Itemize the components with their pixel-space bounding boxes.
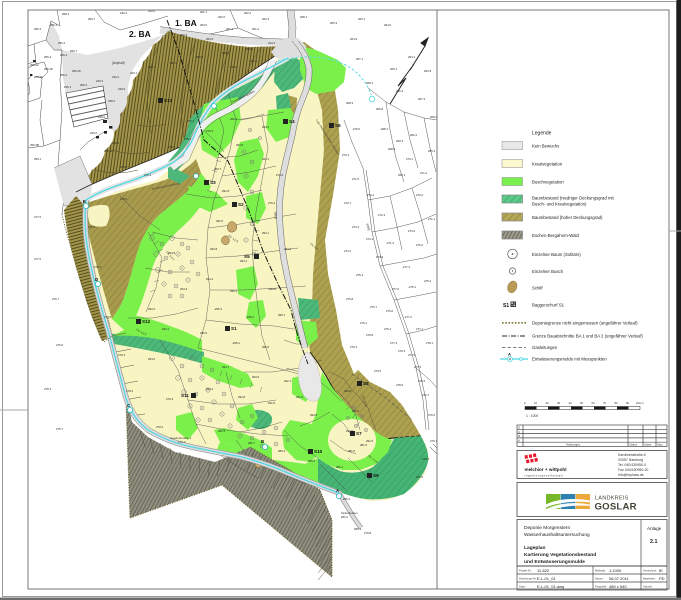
svg-text:267.1: 267.1 [356, 57, 363, 61]
svg-text:278.3: 278.3 [44, 387, 51, 391]
svg-text:Anlage: Anlage [647, 526, 662, 531]
svg-text:-276.1: -276.1 [408, 285, 416, 289]
svg-text:262.2: 262.2 [230, 117, 237, 121]
svg-text:Gepr.: Gepr. [657, 443, 664, 447]
svg-text:Bearbeitet:: Bearbeitet: [643, 577, 656, 581]
svg-text:264.0: 264.0 [384, 23, 391, 27]
svg-text:280.3: 280.3 [354, 527, 361, 531]
svg-text:240.0: 240.0 [90, 131, 97, 135]
svg-text:S3: S3 [210, 180, 216, 185]
svg-text:276.4: 276.4 [384, 327, 391, 331]
svg-text:1 : 1000: 1 : 1000 [526, 414, 538, 418]
svg-text:286.1: 286.1 [336, 465, 343, 469]
svg-text:273.2: 273.2 [408, 229, 415, 233]
svg-text:275.3: 275.3 [422, 457, 429, 461]
svg-text:260.3: 260.3 [112, 141, 119, 145]
svg-text:fK: fK [659, 568, 663, 573]
svg-text:270.4: 270.4 [342, 153, 349, 157]
svg-text:295.2: 295.2 [230, 289, 237, 293]
svg-text:240.3: 240.3 [96, 79, 103, 83]
svg-text:Tel. 040/430950-0: Tel. 040/430950-0 [618, 463, 646, 467]
svg-text:30: 30 [557, 401, 561, 405]
svg-text:20: 20 [546, 401, 550, 405]
svg-text:275.7: 275.7 [56, 427, 63, 431]
svg-text:06.07.2011: 06.07.2011 [609, 576, 629, 581]
svg-text:261.7: 261.7 [200, 10, 207, 14]
svg-text:276.3: 276.3 [398, 349, 405, 353]
svg-text:276.1: 276.1 [360, 321, 367, 325]
svg-text:280.4: 280.4 [278, 449, 285, 453]
svg-text:263.0: 263.0 [200, 23, 207, 27]
svg-text:240.2: 240.2 [120, 11, 127, 15]
svg-text:269.1: 269.1 [398, 173, 405, 177]
svg-text:A: A [508, 352, 511, 357]
svg-text:275.8: 275.8 [120, 165, 127, 169]
svg-text:2.1: 2.1 [650, 539, 658, 545]
svg-text:275.3: 275.3 [424, 279, 431, 283]
svg-text:256.29: 256.29 [72, 69, 81, 73]
svg-text:-268.1: -268.1 [380, 127, 388, 131]
svg-text:291.5: 291.5 [366, 439, 373, 443]
svg-text:265.3: 265.3 [330, 21, 337, 25]
svg-text:277.8: 277.8 [88, 225, 95, 229]
svg-text:268.1: 268.1 [300, 15, 307, 19]
svg-text:291.8: 291.8 [222, 189, 229, 193]
svg-text:256.4: 256.4 [58, 41, 65, 45]
svg-text:277.6: 277.6 [34, 215, 41, 219]
svg-text:291.6: 291.6 [352, 409, 359, 413]
svg-text:256.3: 256.3 [80, 83, 87, 87]
svg-text:259.7: 259.7 [88, 17, 95, 21]
svg-text:276.3: 276.3 [118, 353, 125, 357]
svg-text:278.4: 278.4 [418, 379, 425, 383]
svg-text:277.4: 277.4 [390, 341, 397, 345]
svg-text:240.1: 240.1 [250, 59, 257, 63]
svg-text:277.1: 277.1 [416, 327, 423, 331]
svg-text:90: 90 [626, 401, 630, 405]
svg-text:276.4: 276.4 [94, 265, 101, 269]
svg-text:S6: S6 [335, 123, 341, 128]
svg-text:259.24: 259.24 [34, 75, 43, 79]
svg-text:281.5: 281.5 [348, 449, 355, 453]
svg-text:11-622: 11-622 [537, 568, 550, 573]
svg-text:Baggerschurf S1: Baggerschurf S1 [532, 303, 565, 308]
svg-text:239.9: 239.9 [118, 87, 125, 91]
svg-text:Zeichnungs-Nr.:: Zeichnungs-Nr.: [519, 577, 538, 581]
svg-text:Kartierung Vegetationsbestand: Kartierung Vegetationsbestand [524, 552, 596, 558]
svg-text:S7: S7 [356, 431, 362, 436]
svg-text:262.2: 262.2 [244, 11, 251, 15]
svg-text:271.1: 271.1 [428, 217, 435, 221]
svg-text:Baumbestand (niedriger Deckung: Baumbestand (niedriger Deckungsgrad mit [532, 196, 614, 201]
svg-text:20357 Hamburg: 20357 Hamburg [618, 458, 643, 462]
svg-text:293.8: 293.8 [210, 247, 217, 251]
svg-text:S11: S11 [181, 393, 189, 398]
svg-text:256.4: 256.4 [50, 23, 57, 27]
svg-text:263.9: 263.9 [424, 69, 431, 73]
svg-text:480 x 540: 480 x 540 [609, 584, 627, 589]
svg-text:274.6: 274.6 [276, 173, 283, 177]
svg-text:279.5: 279.5 [374, 369, 381, 373]
svg-text:240.2: 240.2 [230, 65, 237, 69]
svg-text:Entwässerungsmulde mit Messpun: Entwässerungsmulde mit Messpunkten [532, 357, 607, 362]
svg-text:Projekt-Nr.:: Projekt-Nr.: [519, 569, 532, 573]
svg-text:Maßstab:: Maßstab: [595, 569, 606, 573]
svg-text:Geprüft:: Geprüft: [643, 585, 653, 589]
svg-text:264.9: 264.9 [350, 37, 357, 41]
svg-text:S4: S4 [289, 119, 295, 124]
svg-text:276.4: 276.4 [268, 201, 275, 205]
svg-text:-277.3: -277.3 [402, 265, 410, 269]
svg-text:-295.2: -295.2 [246, 315, 254, 319]
svg-text:E-L-01_01: E-L-01_01 [537, 576, 556, 581]
svg-text:295.1: 295.1 [278, 313, 285, 317]
svg-text:270.1: 270.1 [406, 157, 413, 161]
svg-text:264.1: 264.1 [408, 55, 415, 59]
svg-text:70: 70 [603, 401, 607, 405]
svg-text:S10: S10 [314, 449, 323, 454]
svg-text:276.5: 276.5 [104, 315, 111, 319]
svg-text:263.1: 263.1 [262, 125, 269, 129]
svg-text:265.3: 265.3 [428, 149, 435, 153]
svg-text:265.1: 265.1 [390, 67, 397, 71]
svg-text:D: D [95, 277, 98, 282]
svg-text:Einzelner Baum (Solitärs): Einzelner Baum (Solitärs) [532, 252, 581, 257]
svg-text:40: 40 [569, 401, 573, 405]
svg-text:293.1: 293.1 [262, 231, 269, 235]
svg-text:263.7: 263.7 [214, 167, 221, 171]
svg-text:256.7: 256.7 [70, 49, 77, 53]
svg-text:Datum:: Datum: [595, 577, 604, 581]
svg-text:272.1: 272.1 [344, 201, 351, 205]
svg-text:275.0: 275.0 [184, 137, 191, 141]
svg-text:293.4: 293.4 [206, 387, 213, 391]
svg-text:294.2: 294.2 [284, 247, 291, 251]
svg-text:238.2: 238.2 [108, 99, 115, 103]
svg-text:und Entwässerungsmulde: und Entwässerungsmulde [524, 559, 585, 565]
svg-text:D: D [518, 426, 520, 430]
svg-text:info@mplusw.de: info@mplusw.de [618, 473, 644, 477]
svg-text:276.6: 276.6 [428, 413, 435, 417]
svg-text:255.1: 255.1 [64, 85, 71, 89]
svg-text:281.5: 281.5 [218, 429, 225, 433]
svg-text:239.0: 239.0 [98, 115, 105, 119]
svg-text:294.0: 294.0 [148, 357, 155, 361]
svg-text:291.5: 291.5 [346, 429, 353, 433]
svg-text:269.3: 269.3 [396, 139, 403, 143]
svg-text:S13: S13 [164, 98, 173, 103]
svg-text:274.9: 274.9 [376, 255, 383, 259]
svg-text:274.2: 274.2 [344, 249, 351, 253]
svg-text:-294.8: -294.8 [268, 287, 276, 291]
svg-text:293.2: 293.2 [148, 307, 155, 311]
svg-text:-270.0: -270.0 [352, 127, 360, 131]
svg-text:GOSLAR: GOSLAR [595, 502, 637, 513]
svg-text:268.2: 268.2 [430, 115, 437, 119]
svg-text:Gasleitungen: Gasleitungen [532, 345, 558, 350]
svg-text:266.4: 266.4 [396, 89, 403, 93]
svg-text:284.3: 284.3 [246, 47, 253, 51]
svg-text:-205.4: -205.4 [342, 497, 350, 501]
svg-text:280.7: 280.7 [248, 441, 255, 445]
svg-text:Ingenieurgesellschaft: Ingenieurgesellschaft [525, 474, 564, 478]
svg-text:256.2B: 256.2B [30, 143, 39, 147]
svg-text:256.4: 256.4 [60, 53, 67, 57]
svg-text:Karolinenstraße 6: Karolinenstraße 6 [618, 453, 646, 457]
svg-text:-295.2: -295.2 [232, 341, 240, 345]
svg-text:268.8: 268.8 [388, 147, 395, 151]
svg-text:274.1: 274.1 [366, 237, 373, 241]
svg-text:291.5: 291.5 [296, 395, 303, 399]
svg-text:281.0: 281.0 [170, 61, 177, 65]
svg-text:294.4: 294.4 [206, 277, 213, 281]
svg-text:Deponie Morgenstern: Deponie Morgenstern [524, 525, 570, 531]
svg-text:269.8: 269.8 [376, 107, 383, 111]
svg-text:Plotgröße:: Plotgröße: [595, 585, 607, 589]
svg-text:276.1: 276.1 [144, 173, 151, 177]
svg-text:275.8: 275.8 [346, 297, 353, 301]
svg-text:292.8: 292.8 [238, 395, 245, 399]
svg-text:S12: S12 [142, 319, 151, 324]
svg-text:Kein Bewuchs: Kein Bewuchs [532, 144, 559, 149]
svg-text:261.2: 261.2 [226, 27, 233, 31]
svg-text:271.2: 271.2 [420, 171, 427, 175]
svg-text:276.7: 276.7 [422, 393, 429, 397]
svg-text:Fax 040/430950-20: Fax 040/430950-20 [618, 468, 648, 472]
svg-text:279.4: 279.4 [166, 397, 173, 401]
svg-text:294.1: 294.1 [240, 259, 247, 263]
svg-text:B: B [261, 439, 264, 444]
svg-text:2. BA: 2. BA [129, 29, 151, 39]
svg-text:294.1: 294.1 [162, 327, 169, 331]
svg-text:290.8: 290.8 [344, 389, 351, 393]
svg-text:Buschvegetation: Buschvegetation [532, 180, 564, 185]
svg-text:Lageplan: Lageplan [524, 545, 545, 551]
svg-text:S2: S2 [238, 202, 244, 207]
svg-text:277.5: 277.5 [414, 365, 421, 369]
svg-text:277.0: 277.0 [34, 257, 41, 261]
svg-text:100 m: 100 m [636, 401, 644, 405]
svg-text:278.1: 278.1 [426, 341, 433, 345]
svg-text:276.0: 276.0 [120, 197, 127, 201]
svg-text:PD: PD [659, 576, 665, 581]
svg-text:Grenze Bauabschnitte BA 1 und: Grenze Bauabschnitte BA 1 und BA 2 (unge… [532, 334, 643, 339]
svg-text:256.12: 256.12 [30, 63, 39, 67]
svg-text:80: 80 [615, 401, 619, 405]
svg-text:271.5: 271.5 [352, 177, 359, 181]
svg-text:262.3: 262.3 [262, 17, 269, 21]
svg-text:244.3: 244.3 [268, 41, 275, 45]
svg-text:Schilf: Schilf [532, 286, 543, 291]
svg-text:-295.3: -295.3 [214, 307, 222, 311]
svg-text:275.7: 275.7 [370, 305, 377, 309]
svg-text:276.0: 276.0 [386, 309, 393, 313]
svg-text:267.3: 267.3 [418, 97, 425, 101]
svg-text:264.8: 264.8 [236, 143, 243, 147]
svg-text:A: A [518, 439, 520, 443]
svg-text:C: C [518, 430, 520, 434]
svg-text:270.2: 270.2 [416, 193, 423, 197]
svg-text:290.8: 290.8 [310, 413, 317, 417]
svg-text:259.1: 259.1 [34, 157, 41, 161]
svg-text:276.6: 276.6 [56, 343, 63, 347]
svg-text:275.3: 275.3 [206, 129, 213, 133]
svg-text:E: E [83, 199, 86, 204]
svg-text:Baumbestand (hoher Deckungsgra: Baumbestand (hoher Deckungsgrad) [532, 215, 603, 220]
svg-text:Wasserhaushaltsuntersuchung: Wasserhaushaltsuntersuchung [524, 532, 590, 538]
svg-text:263.1: 263.1 [358, 17, 365, 21]
svg-text:Änderungen: Änderungen [566, 443, 581, 447]
svg-text:Busch- und Krautvegetation): Busch- und Krautvegetation) [532, 202, 587, 207]
svg-text:293.6: 293.6 [252, 375, 259, 379]
svg-text:240.1: 240.1 [130, 71, 137, 75]
svg-text:273.4: 273.4 [352, 225, 359, 229]
svg-text:258.4: 258.4 [62, 12, 69, 16]
svg-text:E-L-01_01.dwg: E-L-01_01.dwg [537, 584, 564, 589]
svg-text:276.7: 276.7 [52, 297, 59, 301]
svg-text:278.2: 278.2 [126, 389, 133, 393]
svg-text:276.2: 276.2 [178, 440, 186, 444]
svg-text:295.5: 295.5 [200, 331, 207, 335]
svg-text:294.7: 294.7 [222, 365, 229, 369]
svg-text:-271.3: -271.3 [386, 241, 394, 245]
svg-text:280.1: 280.1 [222, 51, 229, 55]
svg-text:278.6: 278.6 [396, 383, 403, 387]
svg-text:276.3: 276.3 [350, 345, 357, 349]
svg-text:256.2: 256.2 [60, 73, 67, 77]
svg-text:291.6: 291.6 [268, 401, 275, 405]
svg-text:256.3: 256.3 [34, 27, 41, 31]
svg-text:266.2: 266.2 [410, 133, 417, 137]
svg-text:256.4: 256.4 [44, 55, 51, 59]
svg-text:Datei:: Datei: [519, 585, 526, 589]
svg-text:Datum: Datum [630, 443, 638, 447]
svg-text:S9: S9 [373, 473, 379, 478]
svg-text:50: 50 [580, 401, 584, 405]
svg-text:277.9: 277.9 [408, 353, 415, 357]
svg-text:268.3: 268.3 [346, 101, 353, 105]
svg-text:Einzelner Busch: Einzelner Busch [532, 269, 564, 274]
svg-text:S1: S1 [231, 326, 237, 331]
svg-text:275.4: 275.4 [356, 273, 363, 277]
svg-text:276.7: 276.7 [430, 439, 437, 443]
svg-text:260.32: 260.32 [104, 149, 113, 153]
svg-text:279.2: 279.2 [156, 425, 163, 429]
svg-text:276.2: 276.2 [416, 243, 423, 247]
svg-text:60: 60 [592, 401, 596, 405]
svg-text:260.3: 260.3 [180, 33, 187, 37]
svg-text:276.2: 276.2 [168, 145, 175, 149]
svg-text:1. BA: 1. BA [175, 18, 197, 28]
svg-text:285.6: 285.6 [308, 459, 315, 463]
svg-text:Name: Name [645, 443, 652, 447]
svg-text:260.7: 260.7 [148, 65, 155, 69]
svg-text:292.5: 292.5 [216, 219, 223, 223]
svg-text:268.1: 268.1 [366, 81, 373, 85]
svg-text:276.5: 276.5 [416, 475, 423, 479]
svg-text:-270.4: -270.4 [366, 193, 374, 197]
svg-text:280.3: 280.3 [196, 55, 203, 59]
svg-text:262.0: 262.0 [218, 15, 225, 19]
svg-text:10: 10 [534, 401, 538, 405]
svg-text:1:1000: 1:1000 [609, 568, 622, 573]
svg-text:S1: S1 [503, 303, 509, 309]
svg-text:Deponiegrenze nicht eingemesse: Deponiegrenze nicht eingemessen (ungefäh… [532, 321, 638, 326]
svg-text:261.2: 261.2 [252, 27, 259, 31]
svg-text:melchior + wittpohl: melchior + wittpohl [525, 467, 567, 472]
svg-text:240.2: 240.2 [112, 75, 119, 79]
svg-text:295.0: 295.0 [262, 345, 269, 349]
svg-text:-275.1: -275.1 [186, 119, 194, 123]
svg-text:277.0: 277.0 [392, 287, 399, 291]
svg-text:292.1: 292.1 [284, 379, 291, 383]
svg-text:256.28: 256.28 [44, 67, 53, 71]
svg-text:B: B [518, 434, 520, 438]
svg-text:281.5: 281.5 [360, 443, 367, 447]
svg-text:294.4: 294.4 [180, 287, 187, 291]
svg-text:Krautvegetation: Krautvegetation [532, 162, 563, 167]
svg-text:272.3: 272.3 [378, 213, 385, 217]
svg-text:S8: S8 [363, 381, 369, 386]
svg-text:276.8: 276.8 [366, 333, 373, 337]
svg-text:-277.2: -277.2 [404, 315, 412, 319]
svg-text:279.8: 279.8 [364, 531, 371, 535]
svg-text:260.5: 260.5 [206, 37, 213, 41]
svg-text:Legende: Legende [532, 131, 552, 137]
svg-text:(Asphalt): (Asphalt) [112, 61, 125, 65]
svg-text:Gezeichnet:: Gezeichnet: [643, 569, 657, 573]
svg-text:280.2: 280.2 [341, 515, 348, 519]
svg-text:264.1: 264.1 [262, 157, 269, 161]
svg-text:Eschen-Bergahorn-Wald: Eschen-Bergahorn-Wald [532, 233, 580, 238]
